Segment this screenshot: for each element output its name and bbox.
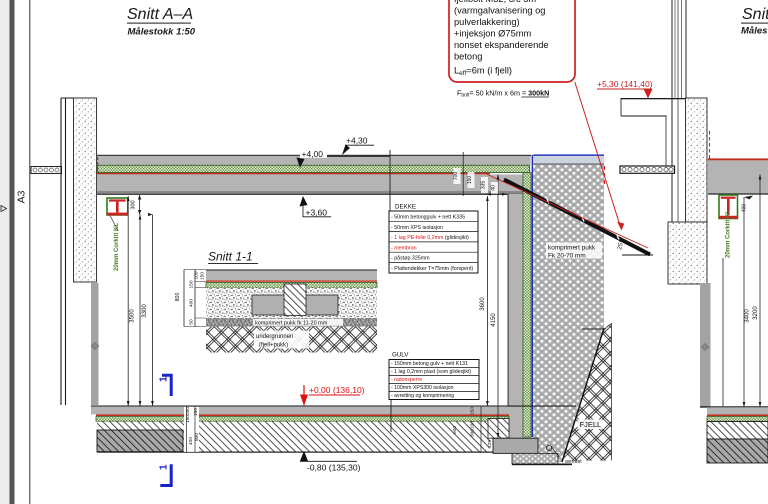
- svg-text:3600: 3600: [480, 297, 486, 311]
- svg-text:(varmgalvanisering og: (varmgalvanisering og: [454, 5, 545, 15]
- svg-text:nonset ekspanderende: nonset ekspanderende: [454, 40, 549, 50]
- svg-text:- 50mm XPS isolasjon: - 50mm XPS isolasjon: [391, 225, 443, 231]
- svg-text:700: 700: [453, 172, 459, 181]
- svg-text:4150: 4150: [491, 313, 497, 327]
- svg-text:- Plattendekker T=75mm (forspe: - Plattendekker T=75mm (forspent): [391, 266, 473, 272]
- svg-text:400: 400: [189, 299, 195, 307]
- svg-text:250: 250: [185, 407, 191, 415]
- svg-text:komprimert pukk: komprimert pukk: [548, 245, 596, 252]
- svg-text:3200: 3200: [753, 306, 759, 320]
- svg-text:GULV: GULV: [392, 352, 409, 359]
- svg-text:1: 1: [159, 376, 170, 382]
- svg-text:avrettet: avrettet: [565, 459, 582, 465]
- svg-text:150: 150: [185, 415, 191, 423]
- svg-text:- radonsperre: - radonsperre: [391, 377, 422, 383]
- svg-text:100: 100: [194, 271, 200, 279]
- svg-text:komprimert pukk fk 11-20 mm: komprimert pukk fk 11-20 mm: [255, 321, 328, 327]
- svg-text:FJELL: FJELL: [580, 420, 602, 429]
- svg-text:20mm Corkitt KL: 20mm Corkitt KL: [114, 223, 120, 271]
- svg-text:Målestokk 1:50: Målestokk 1:50: [128, 27, 196, 38]
- svg-text:50: 50: [189, 319, 195, 325]
- svg-text:(fjell+pukk): (fjell+pukk): [259, 343, 288, 349]
- svg-text:800: 800: [175, 293, 181, 302]
- svg-text:Snitt 1-1: Snitt 1-1: [208, 250, 253, 264]
- svg-text:150: 150: [193, 408, 199, 416]
- svg-text:DEKKE: DEKKE: [395, 204, 416, 211]
- svg-text:335: 335: [481, 181, 487, 190]
- svg-text:+injeksjon Ø75mm: +injeksjon Ø75mm: [454, 28, 532, 38]
- svg-text:- 50mm betonggulv + nett K335: - 50mm betonggulv + nett K335: [391, 215, 465, 221]
- svg-text:Snitt: Snitt: [742, 6, 768, 23]
- svg-text:-0,80 (135,30): -0,80 (135,30): [307, 463, 361, 473]
- svg-text:100: 100: [470, 421, 476, 429]
- svg-text:undergrunnen: undergrunnen: [256, 334, 293, 340]
- svg-text:+5,30 (141,40): +5,30 (141,40): [597, 79, 653, 89]
- svg-text:- 100mm XPS300 isolasjon: - 100mm XPS300 isolasjon: [391, 385, 454, 391]
- svg-text:300: 300: [131, 200, 137, 209]
- svg-text:+4,30: +4,30: [346, 136, 368, 146]
- svg-text:150: 150: [189, 280, 195, 288]
- svg-text:3300: 3300: [142, 304, 148, 318]
- svg-text:125: 125: [487, 440, 493, 448]
- svg-text:pulverlakkering): pulverlakkering): [454, 17, 520, 27]
- svg-text:600: 600: [452, 426, 458, 434]
- svg-text:- 1 lag 0,2mm plast (som glide: - 1 lag 0,2mm plast (som glidesjikt): [391, 369, 471, 375]
- svg-text:150: 150: [470, 407, 476, 415]
- svg-text:fjellbolt M32, c/c 3m: fjellbolt M32, c/c 3m: [454, 0, 536, 4]
- svg-text:20mm Corkitt KL: 20mm Corkitt KL: [726, 210, 732, 258]
- svg-text:300: 300: [470, 429, 476, 437]
- svg-text:+3,60: +3,60: [306, 208, 328, 218]
- svg-text:400: 400: [742, 204, 748, 213]
- svg-text:- 150mm betong gulv + nett K13: - 150mm betong gulv + nett K131: [391, 361, 468, 367]
- svg-text:Fk 20-70 mm: Fk 20-70 mm: [548, 253, 586, 260]
- svg-text:- påstøp 325mm: - påstøp 325mm: [391, 255, 430, 262]
- svg-text:betong: betong: [454, 51, 482, 61]
- svg-text:- avretting og komprimering: - avretting og komprimering: [391, 393, 454, 399]
- svg-text:A3: A3: [16, 190, 28, 203]
- svg-text:+4,00: +4,00: [302, 149, 324, 159]
- svg-text:Målest: Målest: [741, 26, 768, 37]
- svg-text:Snitt A–A: Snitt A–A: [127, 6, 193, 23]
- svg-text:- membran: - membran: [391, 245, 417, 251]
- svg-text:+0,00 (136,10): +0,00 (136,10): [309, 385, 365, 395]
- svg-text:- 1 lag PE-folie 0,2mm (glides: - 1 lag PE-folie 0,2mm (glidesjikt): [391, 235, 469, 241]
- svg-text:150: 150: [467, 176, 473, 185]
- svg-text:40: 40: [491, 185, 497, 191]
- svg-text:3400: 3400: [745, 309, 751, 323]
- svg-text:1: 1: [159, 464, 170, 470]
- svg-text:150: 150: [200, 272, 206, 280]
- svg-text:400: 400: [188, 437, 194, 445]
- svg-text:3500: 3500: [130, 309, 136, 323]
